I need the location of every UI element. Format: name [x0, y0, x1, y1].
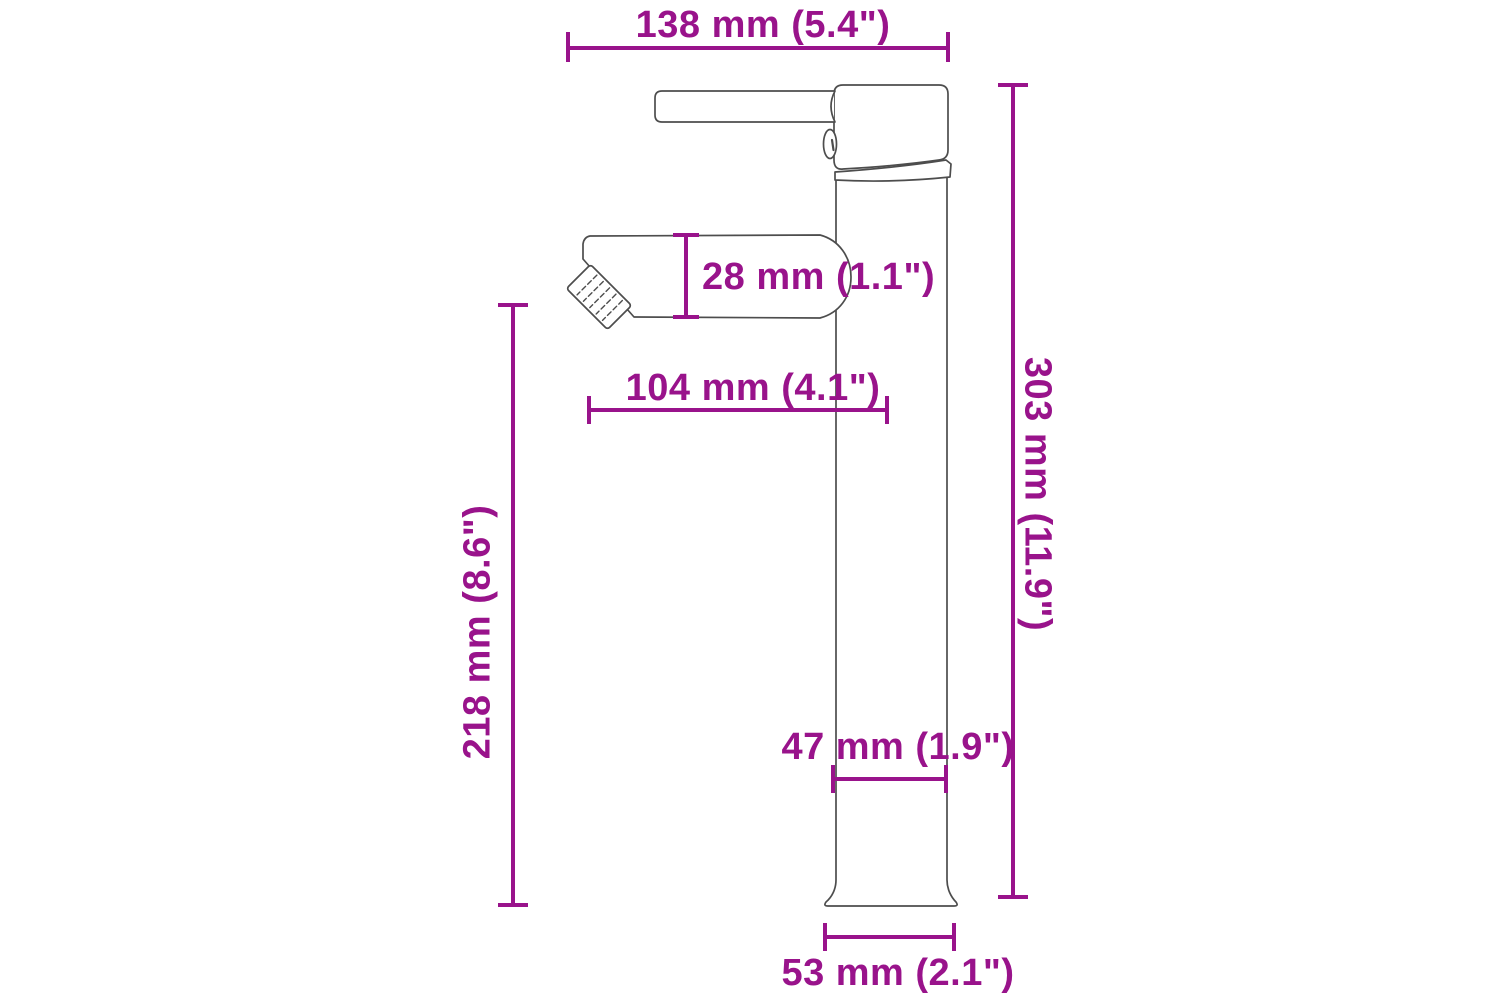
screw-cover-mark — [832, 140, 834, 150]
screw-cover — [824, 130, 837, 159]
faucet-head — [834, 85, 948, 169]
faucet-handle-lever — [655, 91, 834, 122]
faucet-drawing — [0, 0, 1500, 1000]
diagram-canvas: 138 mm (5.4") 28 mm (1.1") 104 mm (4.1")… — [0, 0, 1500, 1000]
